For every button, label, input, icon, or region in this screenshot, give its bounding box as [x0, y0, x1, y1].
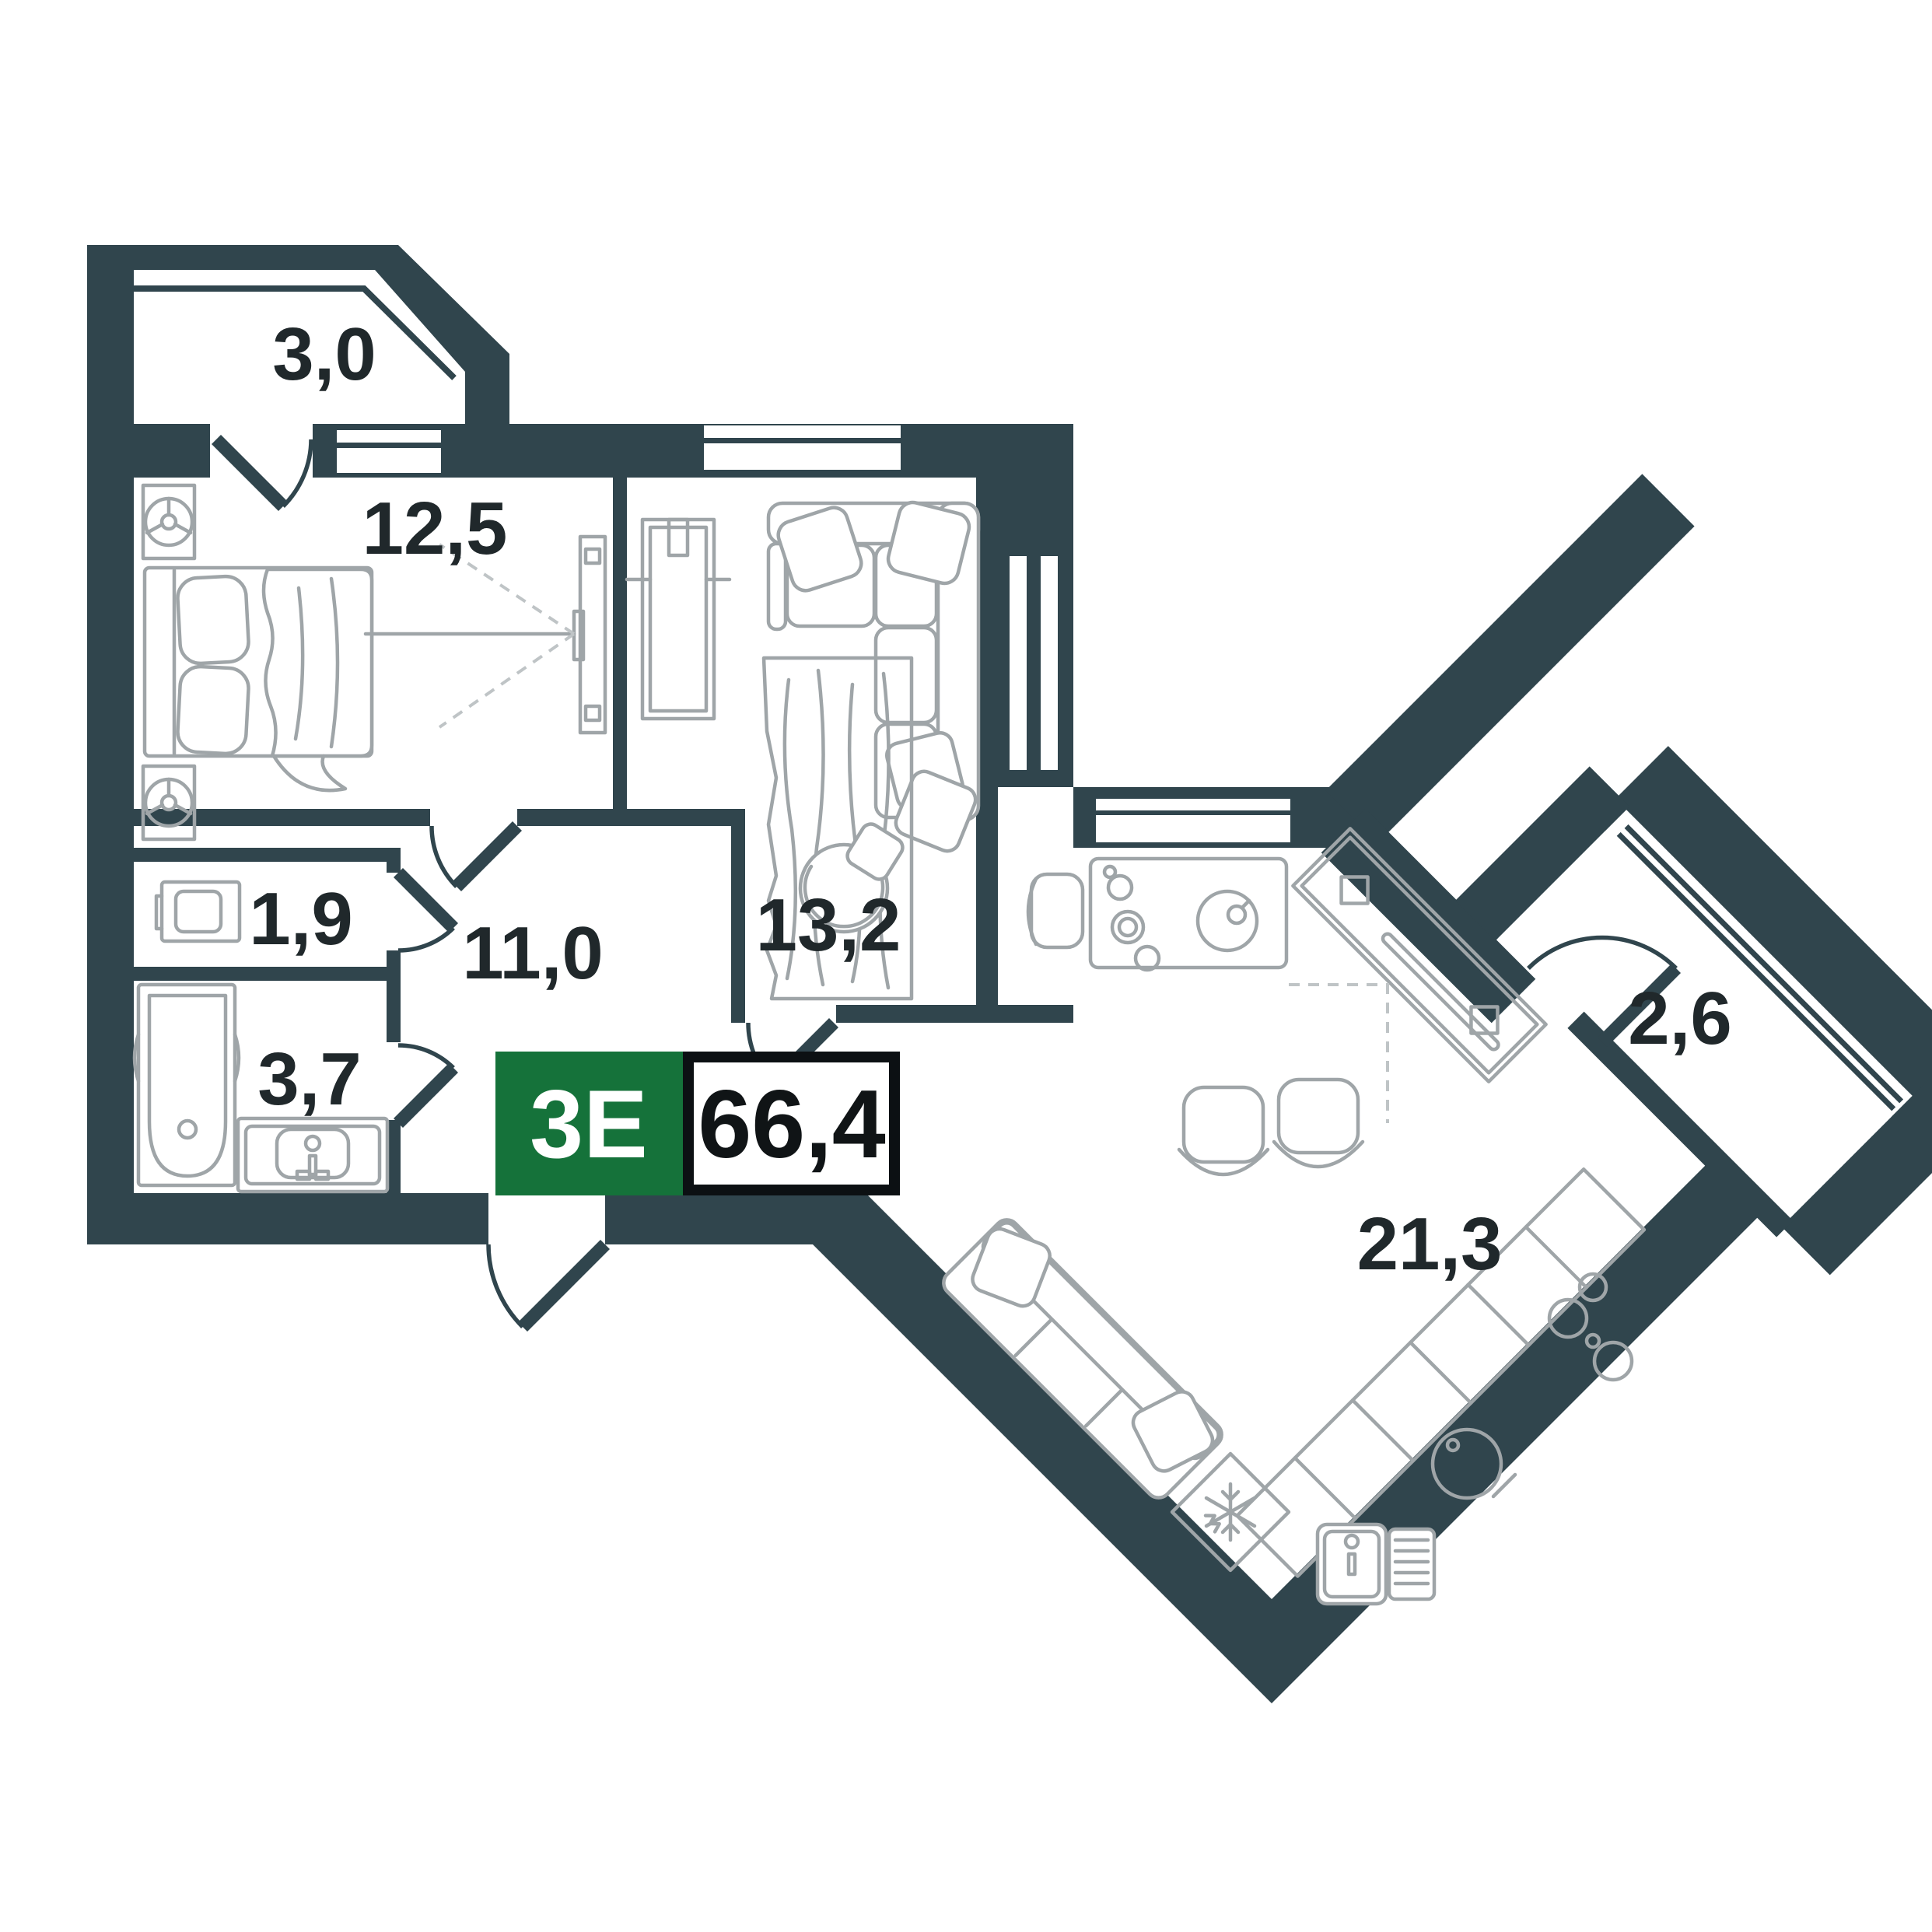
room-label-wc: 1,9: [249, 877, 352, 961]
room-label-balcony-left: 3,0: [272, 313, 376, 396]
wall-wc-bath: [134, 967, 401, 981]
dining-table: [1090, 859, 1286, 970]
wardrobe-living: [627, 520, 730, 719]
furniture-wc: [156, 882, 240, 941]
floor-plan-canvas: 3,0 12,5 13,2 1,9 11,0 3,7 2,6 21,3 3Е 6…: [0, 0, 1932, 1932]
room-label-kitchen: 21,3: [1357, 1202, 1503, 1286]
wall-left-outer: [87, 245, 134, 1244]
bathtub: [135, 985, 239, 1185]
bed: [145, 568, 372, 790]
door-bathroom: [398, 1068, 453, 1123]
wall-bottom-outer: [87, 1193, 840, 1244]
sofa-living: [768, 499, 979, 855]
wall-bedroom-living: [613, 478, 627, 809]
drainer: [1389, 1529, 1434, 1599]
floor-plan: 3,0 12,5 13,2 1,9 11,0 3,7 2,6 21,3 3Е 6…: [0, 0, 1932, 1932]
apartment-badge: 3Е 66,4: [495, 1052, 894, 1195]
wall-hall-living: [731, 826, 745, 1005]
sink-vanity: [238, 1118, 387, 1192]
nightstand-bottom: [143, 766, 194, 839]
room-label-hallway: 11,0: [462, 912, 604, 995]
badge-area-label: 66,4: [698, 1071, 885, 1178]
wall-kitchen-se: [1272, 1161, 1762, 1703]
wall-diagonal-ne-outer: [1352, 500, 1668, 817]
snowflake-icon: [1206, 1484, 1255, 1540]
room-label-bathroom: 3,7: [257, 1038, 361, 1121]
room-label-balcony-right: 2,6: [1628, 977, 1731, 1060]
door-wc: [398, 873, 453, 928]
wall-living-right-lower: [976, 787, 998, 1023]
nightstand-top: [143, 485, 194, 558]
badge-type-label: 3Е: [530, 1071, 648, 1178]
door-bedroom: [457, 826, 517, 887]
wall-wc-top: [134, 848, 401, 862]
room-label-bedroom: 12,5: [362, 487, 508, 570]
door-entrance: [523, 1244, 605, 1327]
dining-chairs: [1028, 874, 1363, 1174]
dining-armchair: [1031, 874, 1083, 947]
room-label-living: 13,2: [756, 884, 901, 967]
kitchen-sink: [1318, 1524, 1434, 1604]
